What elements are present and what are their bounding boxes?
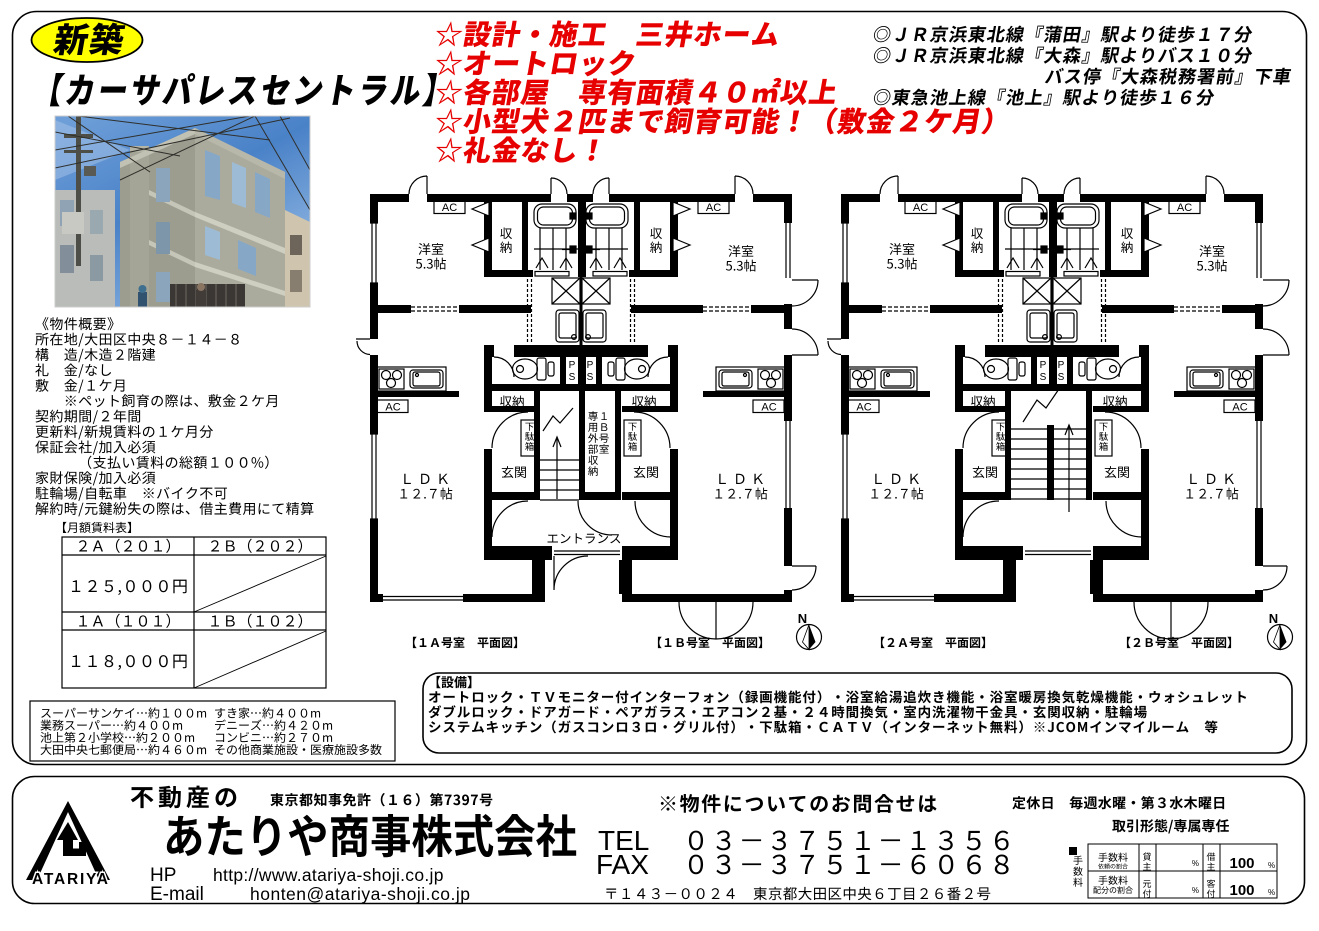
svg-text:%: %: [1192, 886, 1199, 895]
svg-text:P: P: [569, 360, 576, 371]
svg-text:AC: AC: [442, 202, 457, 214]
svg-text:P: P: [1040, 360, 1047, 371]
svg-text:100: 100: [1229, 882, 1254, 899]
svg-text:AC: AC: [385, 402, 400, 414]
svg-text:honten@atariya-shoji.co.jp: honten@atariya-shoji.co.jp: [250, 884, 470, 904]
svg-text:AC: AC: [1232, 402, 1247, 414]
svg-text:N: N: [798, 611, 807, 626]
svg-text:P: P: [1058, 360, 1065, 371]
svg-text:S: S: [569, 372, 576, 383]
svg-text:S: S: [1040, 372, 1047, 383]
svg-text:%: %: [1192, 859, 1199, 868]
svg-text:S: S: [587, 372, 594, 383]
svg-text:E-mail: E-mail: [150, 884, 204, 905]
svg-text:P: P: [587, 360, 594, 371]
svg-text:AC: AC: [913, 202, 928, 214]
svg-text:N: N: [1269, 611, 1278, 626]
svg-text:http://www.atariya-shoji.co.jp: http://www.atariya-shoji.co.jp: [213, 865, 444, 885]
svg-text:ATARIYA: ATARIYA: [32, 871, 110, 888]
svg-text:100: 100: [1229, 855, 1254, 872]
svg-text:AC: AC: [706, 202, 721, 214]
svg-text:AC: AC: [1177, 202, 1192, 214]
svg-text:FAX: FAX: [596, 849, 649, 880]
svg-text:HP: HP: [150, 865, 176, 886]
svg-text:AC: AC: [856, 402, 871, 414]
svg-text:AC: AC: [761, 402, 776, 414]
svg-text:%: %: [1268, 861, 1275, 870]
svg-text:%: %: [1268, 888, 1275, 897]
svg-text:S: S: [1058, 372, 1065, 383]
